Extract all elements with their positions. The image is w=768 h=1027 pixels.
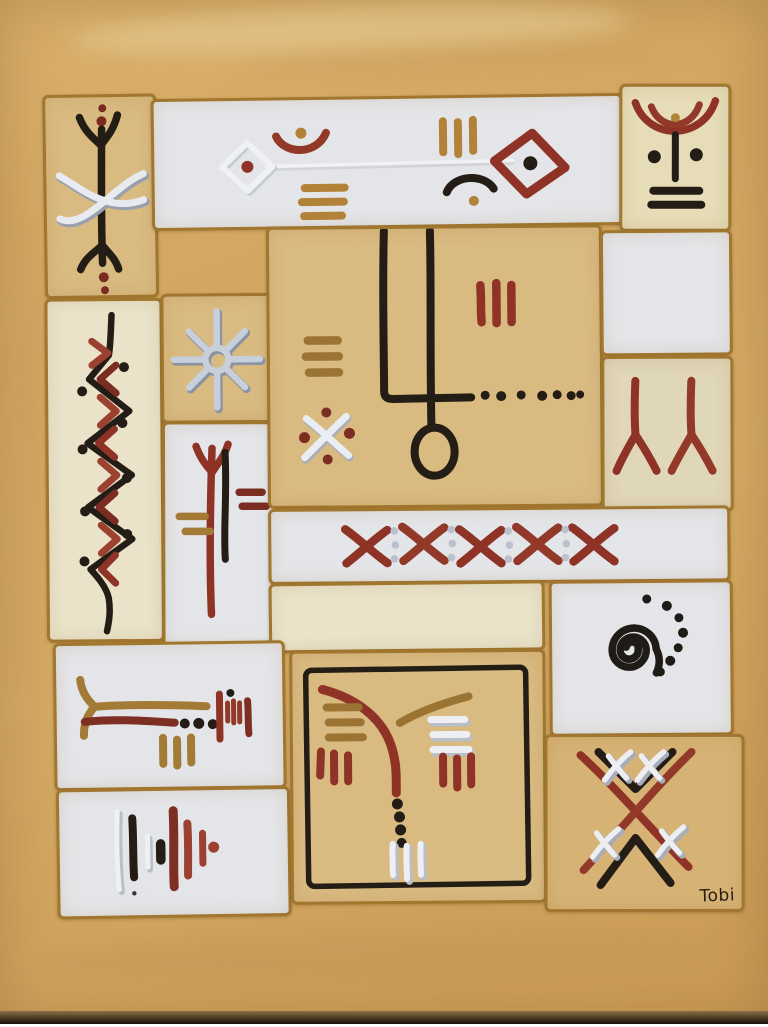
panel-x-row — [268, 505, 731, 585]
black-dots-x3 — [180, 718, 218, 730]
panel-spiral — [549, 579, 734, 736]
panel-right-blank — [600, 229, 733, 356]
black-arc-with-dot-icon — [447, 178, 494, 207]
spiral-icon — [552, 582, 731, 733]
white-bars-x3-icon — [392, 844, 423, 882]
dots-pair-top — [96, 104, 106, 126]
red-bars-right-x3-icon — [443, 756, 471, 787]
ochre-bars-x3-icon — [163, 737, 191, 765]
star-rays — [174, 311, 261, 408]
panel-double-y — [601, 356, 733, 512]
x-row-icons — [271, 508, 728, 582]
red-bars-x3-icon — [480, 283, 511, 323]
red-arc-with-dot-icon — [276, 127, 326, 150]
black-bar — [132, 818, 134, 877]
black-pole — [224, 452, 225, 559]
red-bars-left-x3-icon — [320, 751, 348, 781]
red-dot — [208, 842, 219, 853]
panel-left-zigzag — [44, 298, 165, 643]
white-dashes-x3-icon — [431, 719, 471, 752]
symbol-grid: Tobi — [0, 0, 768, 1027]
red-inverted-y — [671, 381, 712, 471]
trident-pole-icon — [45, 96, 156, 296]
red-x-icons — [345, 525, 614, 564]
face-symbols — [622, 87, 728, 229]
embossed-line-icon — [266, 160, 512, 169]
red-bar-cluster-icon — [219, 689, 249, 739]
bordered-square-symbols — [292, 652, 544, 902]
panel-top-left — [42, 93, 159, 299]
painting-canvas: Tobi — [0, 0, 768, 1024]
white-speck — [147, 896, 152, 901]
double-inverted-y-icon — [604, 359, 730, 509]
white-diamond-with-dot-icon — [222, 142, 275, 193]
bottom-edge-shadow — [0, 1011, 768, 1024]
ochre-dashes-x3-icon — [327, 707, 363, 737]
fork-line-symbols — [56, 643, 284, 788]
panel-red-trident — [162, 421, 281, 649]
panel-cream-blank — [269, 580, 546, 653]
double-stem-loop-icon — [383, 230, 472, 476]
white-cross-red-dots-icon — [299, 407, 355, 464]
ochre-dashes-x3-icon — [302, 188, 345, 217]
black-dotted-line-icon — [481, 390, 585, 401]
bar-rhythm-icons — [59, 789, 289, 916]
red-dashes-x2 — [239, 492, 266, 506]
pole-with-two-dots-icon — [648, 135, 703, 179]
black-square-border — [306, 667, 529, 886]
banner-symbols — [154, 96, 622, 228]
panel-lattice: Tobi — [544, 734, 744, 912]
ochre-dashes-x2 — [179, 516, 210, 531]
red-bar — [187, 823, 188, 875]
ochre-bars-x3-icon — [443, 120, 473, 154]
panel-bar-rhythm — [56, 786, 292, 919]
ochre-dashes-x3-icon — [306, 340, 339, 372]
lattice-symbols — [547, 737, 741, 909]
center-symbols — [269, 227, 601, 506]
panel-bordered-square — [289, 649, 547, 905]
red-trident-pole-icon — [165, 424, 278, 646]
panel-center-hook — [266, 224, 604, 509]
black-speck — [132, 891, 136, 895]
eight-ray-star-icon — [163, 296, 270, 421]
panel-fork-line — [53, 640, 287, 791]
black-spiral — [612, 628, 659, 673]
black-dashes-x2-icon — [651, 191, 701, 205]
red-inverted-y — [616, 381, 656, 471]
ochre-dot-icon — [671, 113, 680, 122]
white-bar — [116, 812, 119, 890]
zigzag-snake-icon — [47, 301, 162, 640]
red-diamond-with-dot-icon — [492, 130, 568, 197]
panel-top-banner — [151, 93, 625, 231]
maroon-bar — [173, 811, 175, 887]
dots-pair-bottom — [99, 272, 109, 294]
maroon-line-icon — [85, 719, 175, 723]
panel-top-right — [619, 84, 731, 232]
panel-star — [160, 293, 273, 424]
artist-signature: Tobi — [699, 885, 735, 906]
